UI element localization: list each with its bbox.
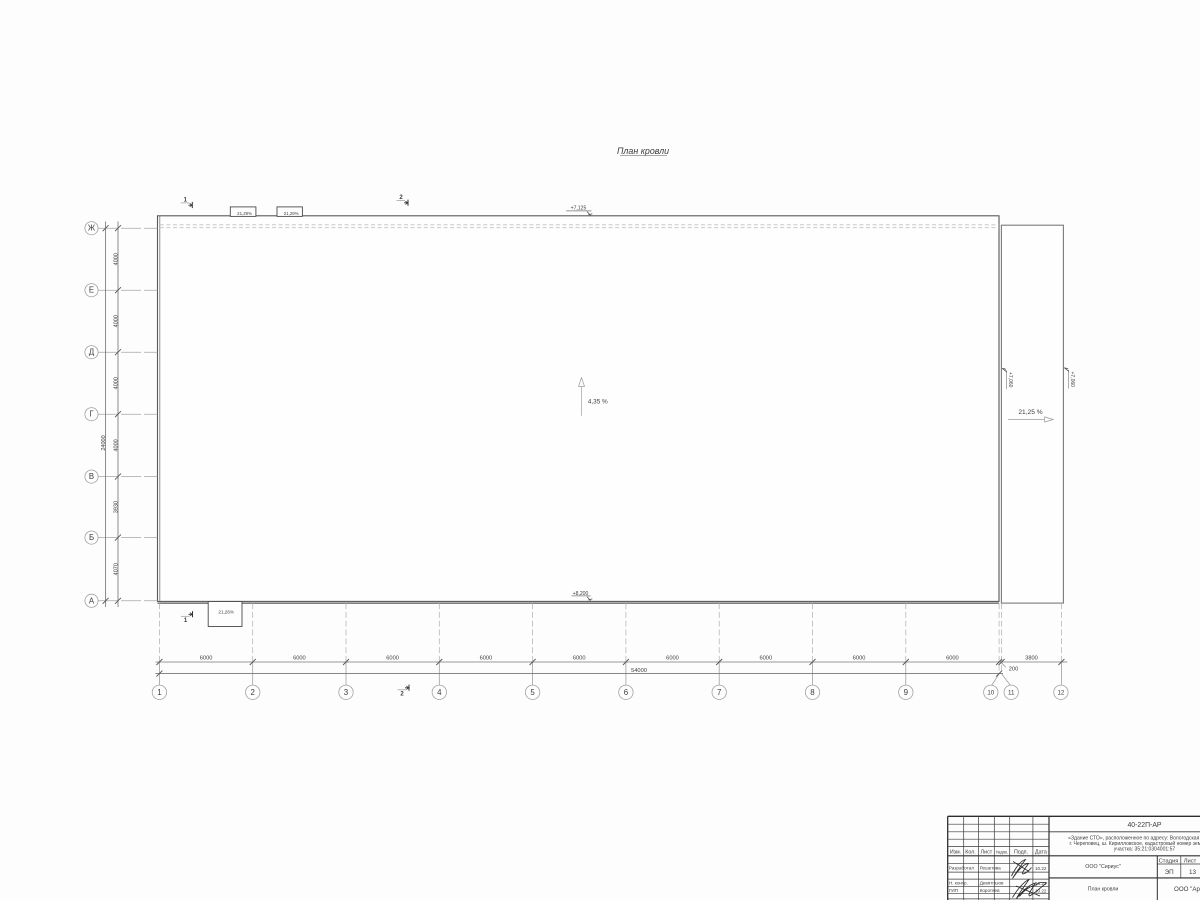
svg-text:10.22: 10.22 xyxy=(1035,866,1047,871)
svg-text:Б: Б xyxy=(89,533,94,542)
svg-text:План кровли: План кровли xyxy=(617,146,669,156)
svg-text:ООО "Арсенал": ООО "Арсенал" xyxy=(1174,886,1200,893)
svg-text:Решетова: Решетова xyxy=(980,866,1001,871)
svg-text:24000: 24000 xyxy=(101,435,107,450)
svg-text:54000: 54000 xyxy=(631,668,647,674)
svg-text:1: 1 xyxy=(157,688,161,697)
svg-text:2: 2 xyxy=(251,688,255,697)
svg-text:200: 200 xyxy=(1009,667,1019,673)
svg-text:4,35 %: 4,35 % xyxy=(588,398,608,405)
svg-text:4070: 4070 xyxy=(113,563,119,575)
svg-text:21,26%: 21,26% xyxy=(218,610,234,615)
svg-text:3930: 3930 xyxy=(113,501,119,513)
svg-text:4000: 4000 xyxy=(113,377,119,389)
svg-text:Кол.: Кол. xyxy=(965,850,975,856)
svg-text:6000: 6000 xyxy=(853,655,866,661)
svg-text:Подп.: Подп. xyxy=(1014,850,1028,856)
svg-text:Разработал: Разработал xyxy=(949,866,974,871)
svg-text:Н. контр.: Н. контр. xyxy=(949,880,968,885)
svg-text:Девятгазов: Девятгазов xyxy=(980,880,1004,885)
svg-text:3: 3 xyxy=(344,688,349,697)
svg-text:+7,060: +7,060 xyxy=(1007,372,1013,388)
svg-text:11: 11 xyxy=(1008,690,1015,697)
svg-text:40-22П-АР: 40-22П-АР xyxy=(1127,822,1161,829)
svg-text:4: 4 xyxy=(437,688,442,697)
svg-text:4000: 4000 xyxy=(113,315,119,327)
svg-text:6000: 6000 xyxy=(293,655,306,661)
svg-text:А: А xyxy=(89,596,95,605)
svg-text:13: 13 xyxy=(1189,869,1197,876)
svg-text:План кровли: План кровли xyxy=(1088,886,1119,892)
svg-text:ГИП: ГИП xyxy=(949,888,958,893)
svg-text:9: 9 xyxy=(904,688,909,697)
svg-text:Ж: Ж xyxy=(88,224,96,233)
svg-text:6000: 6000 xyxy=(666,655,679,661)
svg-text:12: 12 xyxy=(1057,690,1064,697)
svg-text:6000: 6000 xyxy=(946,655,959,661)
svg-text:21,25 %: 21,25 % xyxy=(1018,409,1042,416)
svg-text:Дата: Дата xyxy=(1035,850,1047,856)
svg-text:Коротяев: Коротяев xyxy=(980,888,1000,893)
svg-text:6000: 6000 xyxy=(386,655,399,661)
svg-text:5: 5 xyxy=(530,688,535,697)
svg-text:10.22: 10.22 xyxy=(1035,881,1047,886)
svg-text:+7,060: +7,060 xyxy=(1069,371,1075,387)
svg-text:6: 6 xyxy=(624,688,629,697)
svg-text:6000: 6000 xyxy=(573,655,586,661)
svg-text:21,29%: 21,29% xyxy=(237,211,252,216)
svg-text:7: 7 xyxy=(717,688,721,697)
svg-text:8: 8 xyxy=(810,688,815,697)
svg-text:ООО "Сириус": ООО "Сириус" xyxy=(1085,864,1121,870)
svg-text:21,29%: 21,29% xyxy=(284,211,299,216)
svg-text:Е: Е xyxy=(89,286,94,295)
svg-text:4000: 4000 xyxy=(113,253,119,265)
svg-text:В: В xyxy=(89,472,94,481)
svg-text:3800: 3800 xyxy=(1025,655,1038,661)
svg-text:Стадия: Стадия xyxy=(1159,858,1179,864)
svg-text:Лист: Лист xyxy=(981,850,993,856)
svg-text:участка: 35:21:0304001:57: участка: 35:21:0304001:57 xyxy=(1114,847,1176,853)
svg-text:Д: Д xyxy=(89,348,95,357)
svg-text:6000: 6000 xyxy=(759,655,772,661)
svg-text:4000: 4000 xyxy=(113,439,119,451)
svg-text:ЭП: ЭП xyxy=(1165,869,1175,876)
svg-text:№док.: №док. xyxy=(996,849,1008,854)
svg-text:Изм.: Изм. xyxy=(950,850,961,856)
svg-text:6000: 6000 xyxy=(480,655,493,661)
svg-text:Лист: Лист xyxy=(1184,858,1197,864)
svg-text:6000: 6000 xyxy=(200,655,213,661)
svg-text:10: 10 xyxy=(987,690,994,697)
